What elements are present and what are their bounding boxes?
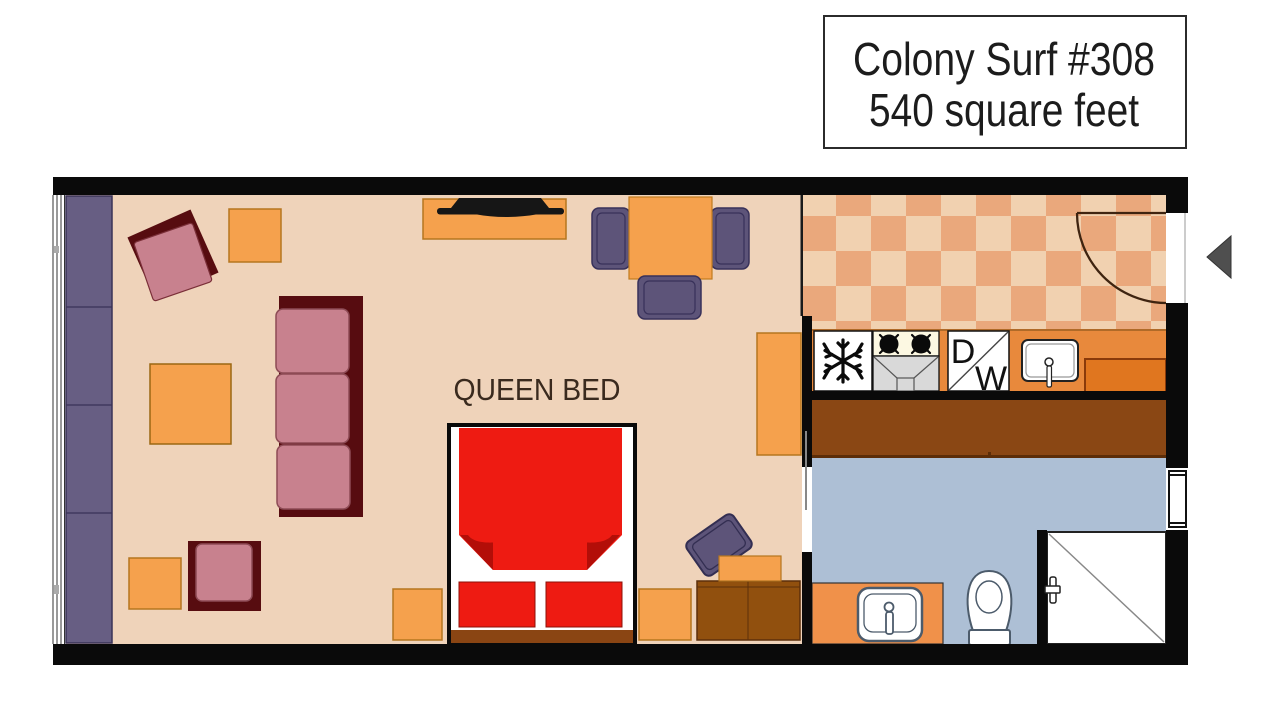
svg-text:Colony Surf #308: Colony Surf #308: [853, 33, 1155, 85]
svg-text:D: D: [951, 333, 976, 371]
svg-text:540 square feet: 540 square feet: [869, 84, 1139, 136]
svg-text:QUEEN BED: QUEEN BED: [454, 372, 621, 407]
